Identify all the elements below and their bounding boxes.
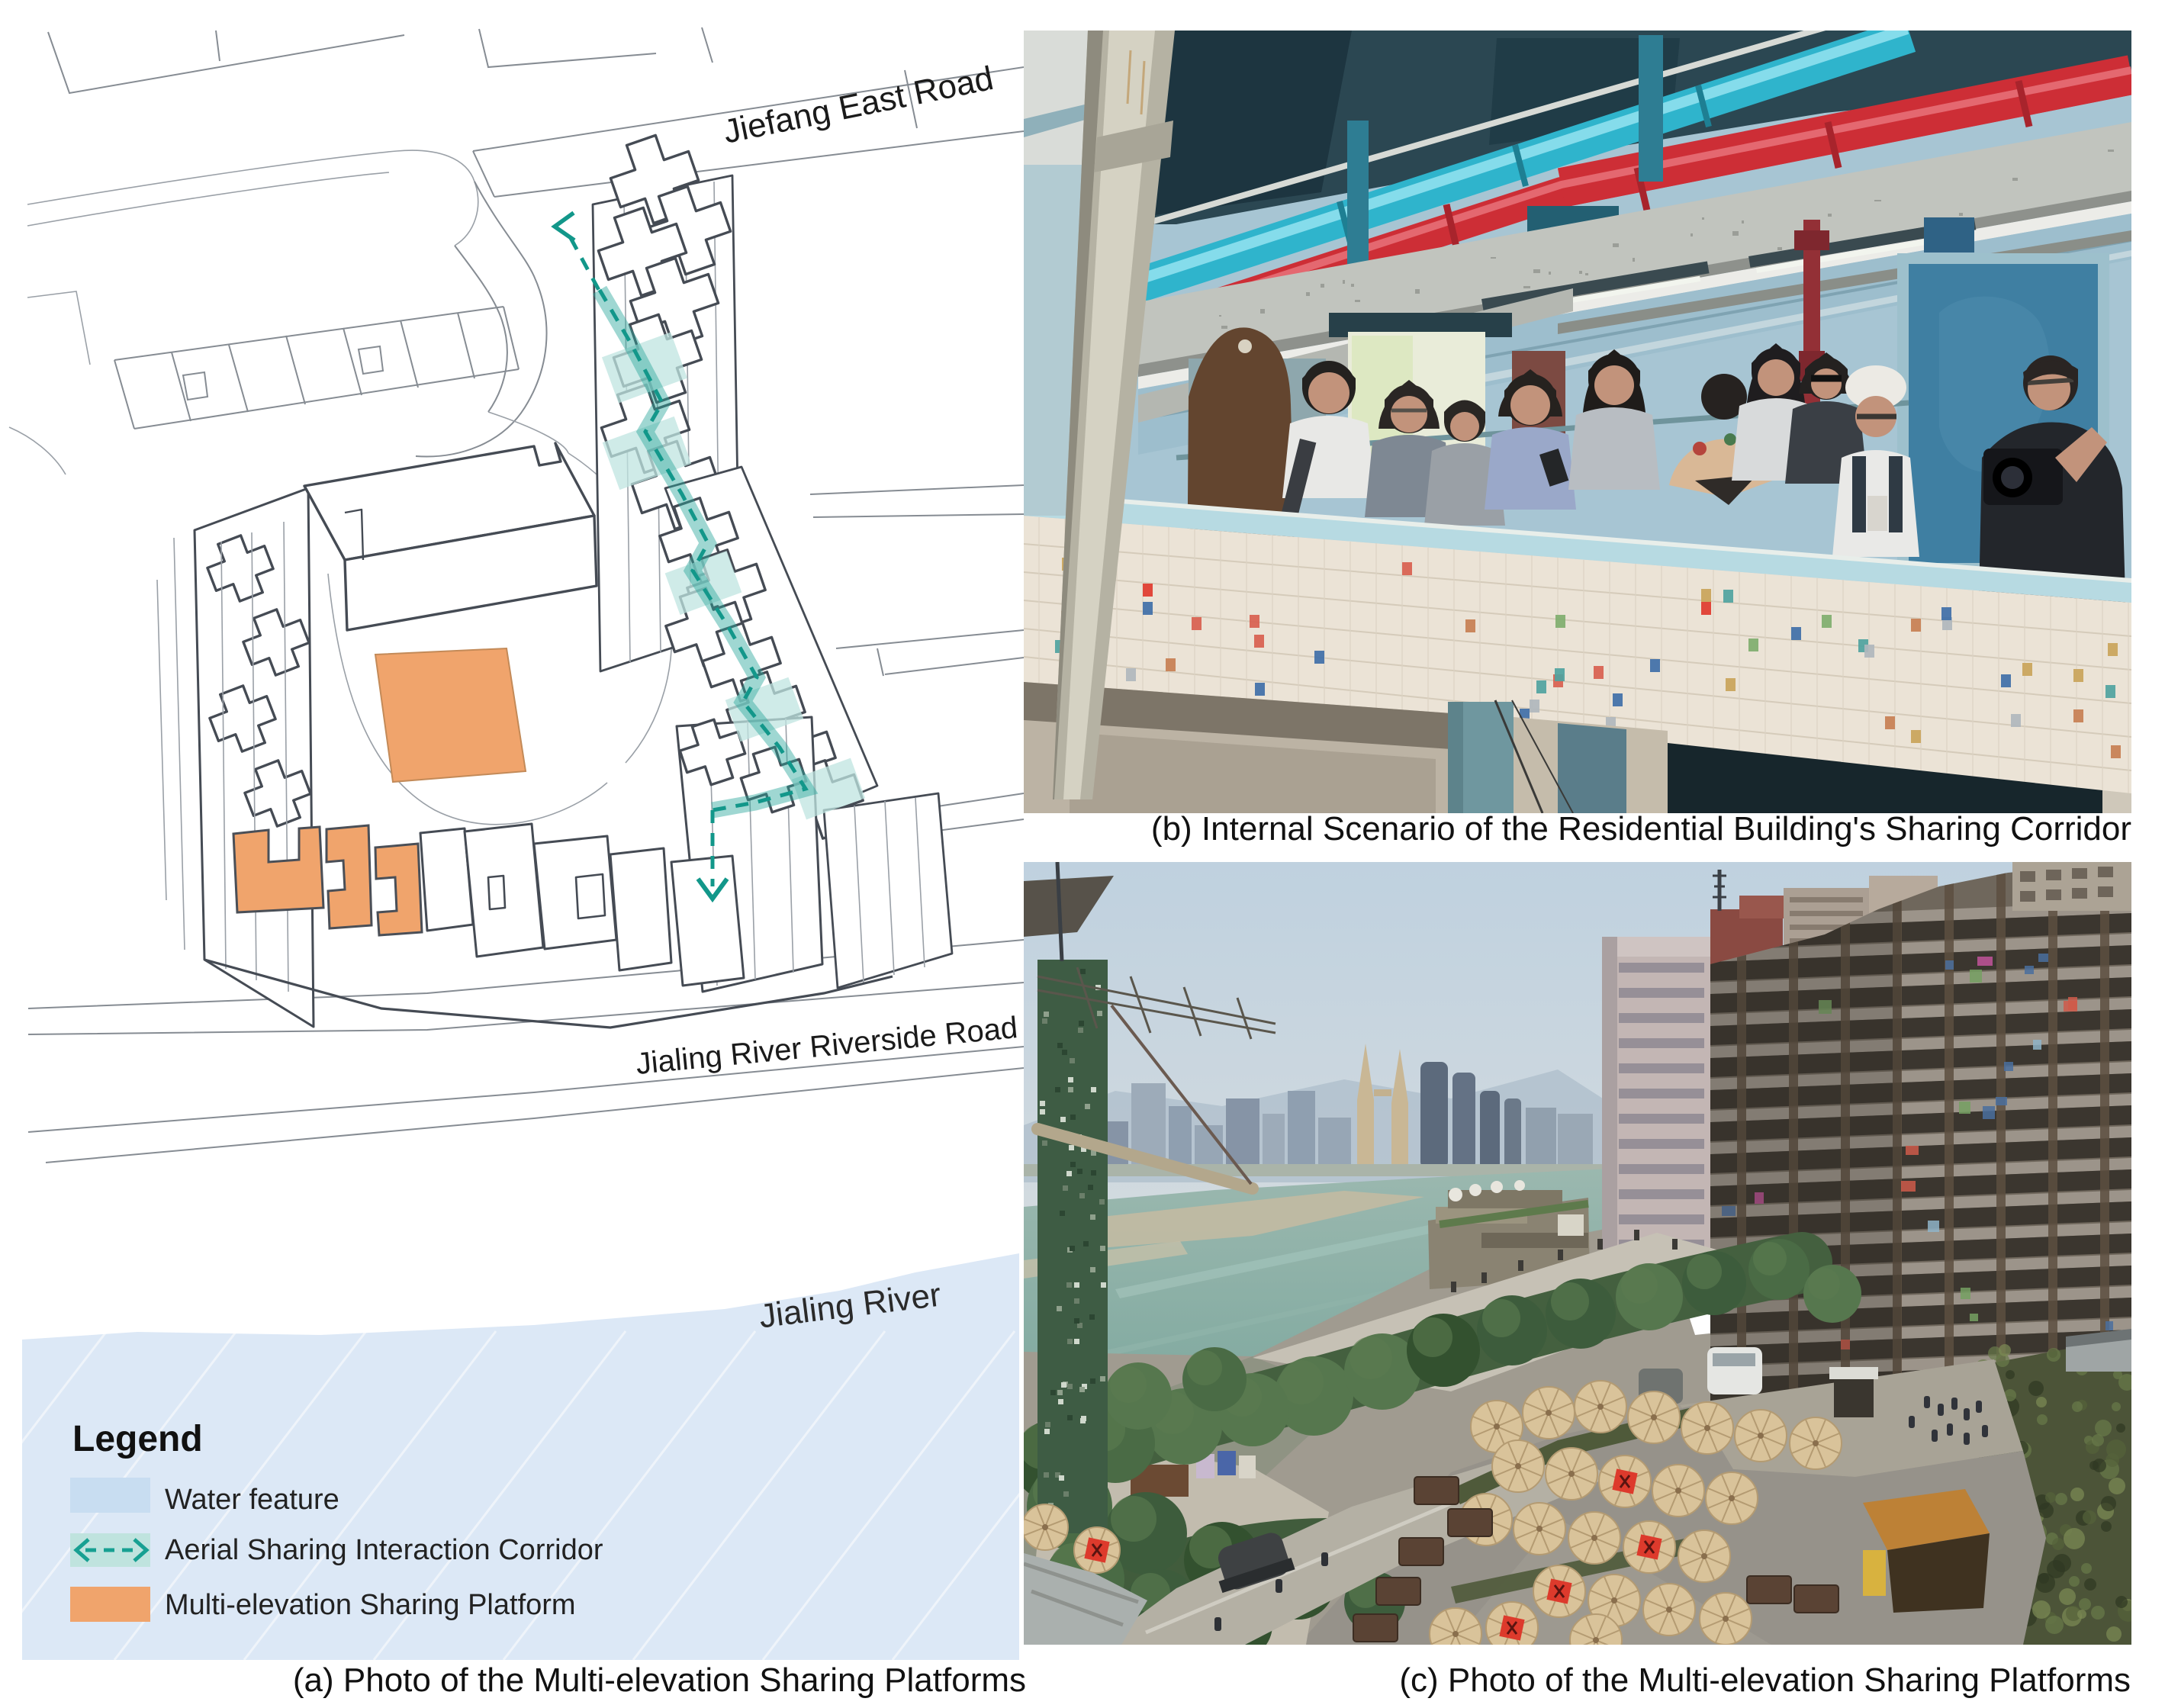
svg-text:Aerial Sharing Interaction Cor: Aerial Sharing Interaction Corridor	[165, 1534, 603, 1566]
svg-text:Jialing River Riverside Road: Jialing River Riverside Road	[635, 1011, 1019, 1081]
svg-text:Jiefang East Road: Jiefang East Road	[720, 60, 996, 151]
svg-text:Water feature: Water feature	[165, 1484, 339, 1516]
svg-text:Legend: Legend	[72, 1419, 203, 1459]
svg-text:Multi-elevation Sharing Platfo: Multi-elevation Sharing Platform	[165, 1589, 576, 1621]
